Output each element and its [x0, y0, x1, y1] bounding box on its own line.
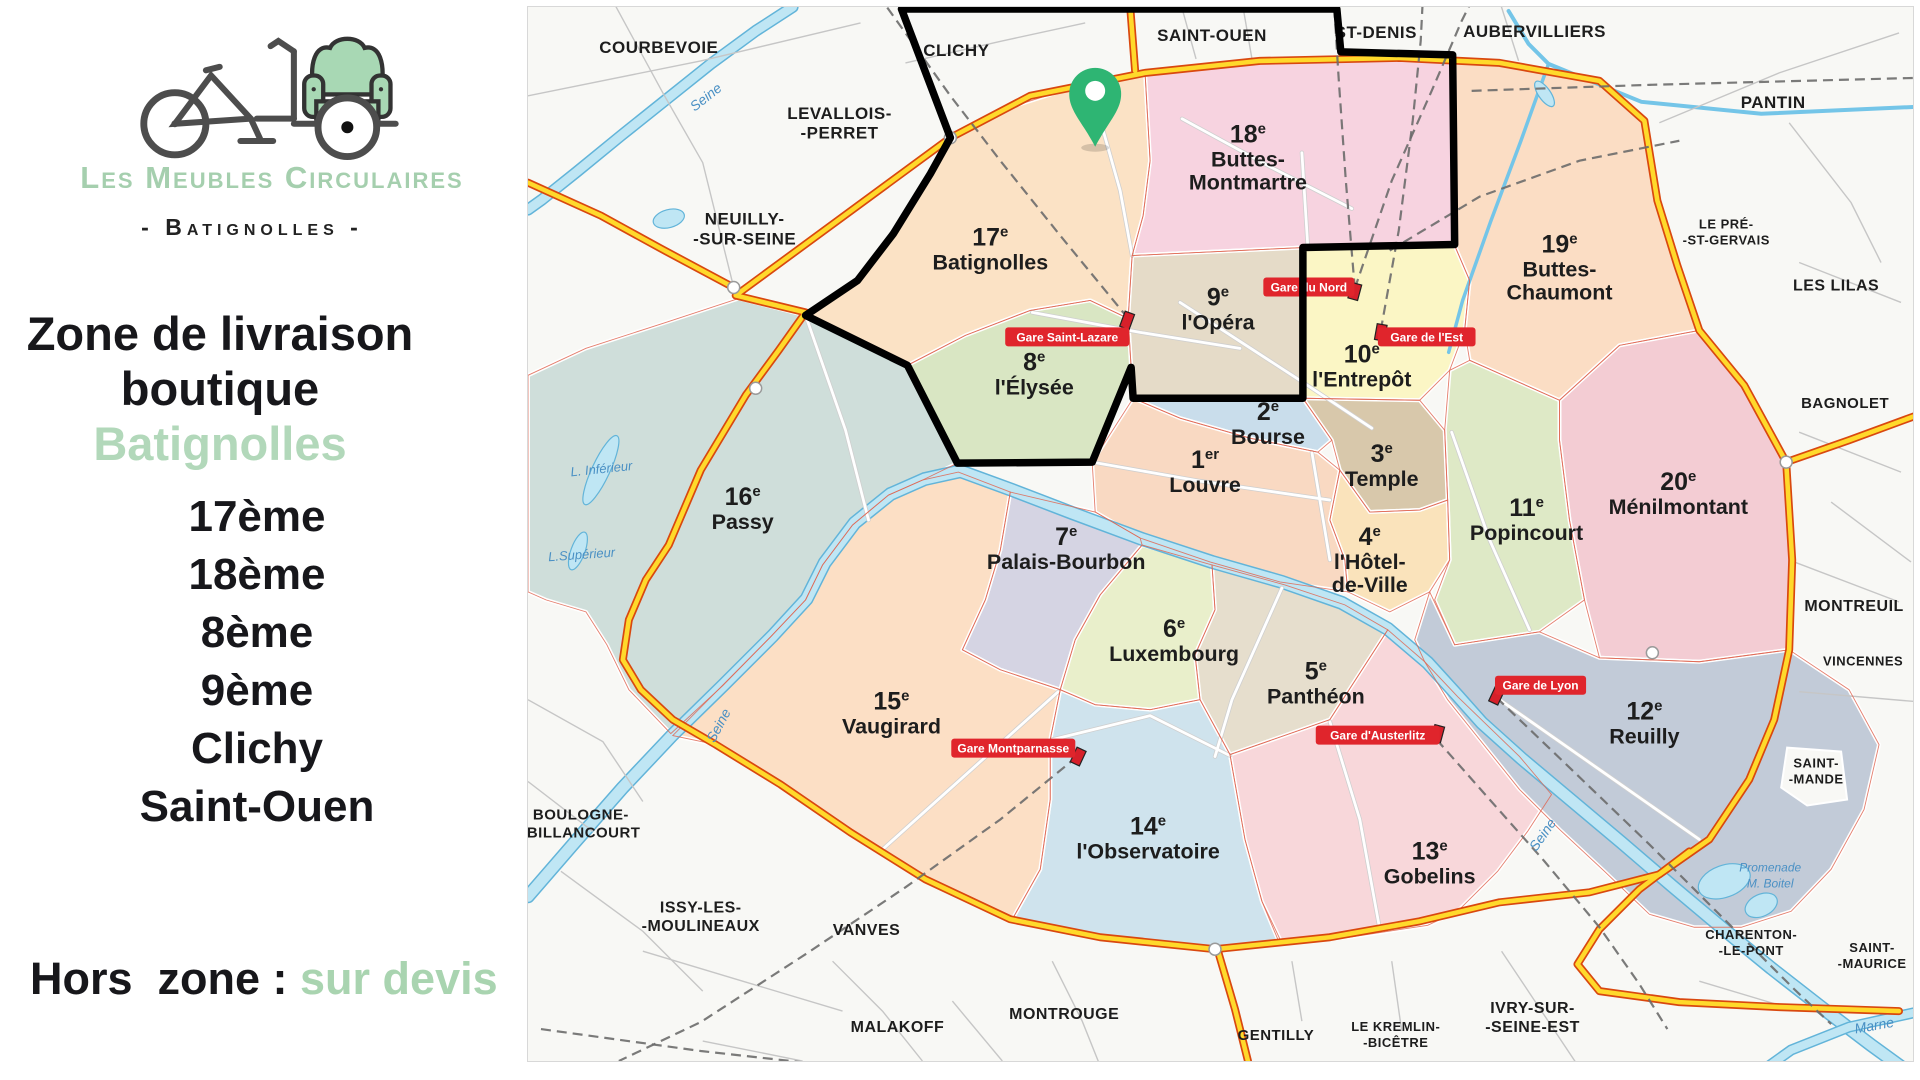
- suburb-label-21-0: BOULOGNE-: [533, 806, 629, 823]
- suburb-label-12-0: VINCENNES: [1823, 654, 1903, 669]
- suburb-label-22-0: GENTILLY: [1238, 1027, 1315, 1044]
- region-name-9e-0: l'Opéra: [1181, 310, 1255, 334]
- suburb-label-23-0: LE KREMLIN-: [1351, 1019, 1440, 1034]
- paris-delivery-map: SeineSeineSeineMarneL. InférieurL.Supéri…: [527, 6, 1914, 1062]
- region-name-20e-0: Ménilmontant: [1609, 495, 1748, 519]
- suburb-label-13-1: -MANDE: [1789, 772, 1844, 787]
- out-of-zone-label: Hors zone :: [30, 953, 300, 1004]
- station-label-3: Gare Montparnasse: [957, 742, 1069, 756]
- suburb-label-1-0: CLICHY: [923, 41, 989, 60]
- title-line2-green: Batignolles: [93, 417, 346, 470]
- suburb-label-17-0: MALAKOFF: [851, 1019, 945, 1036]
- suburb-label-9-1: -SUR-SEINE: [693, 230, 796, 249]
- suburb-label-13-0: SAINT-: [1793, 756, 1839, 771]
- suburb-label-3-0: ST-DENIS: [1335, 23, 1417, 42]
- suburb-label-5-0: PANTIN: [1741, 93, 1806, 112]
- suburb-label-4-0: AUBERVILLIERS: [1463, 22, 1606, 41]
- region-name-19e-0: Buttes-: [1523, 257, 1597, 281]
- suburb-label-11-0: MONTREUIL: [1804, 598, 1903, 615]
- suburb-label-20-0: ISSY-LES-: [660, 899, 742, 916]
- suburb-label-23-1: -BICÊTRE: [1363, 1035, 1428, 1050]
- suburb-label-19-0: VANVES: [833, 922, 900, 939]
- suburb-label-8-1: -PERRET: [801, 124, 879, 143]
- region-name-14e-0: l'Observatoire: [1076, 839, 1220, 863]
- suburb-label-16-1: -SEINE-EST: [1485, 1019, 1580, 1036]
- pin-hole: [1085, 81, 1105, 101]
- suburb-label-20-1: -MOULINEAUX: [642, 918, 760, 935]
- region-name-11e-0: Popincourt: [1470, 521, 1583, 545]
- region-name-4e-1: de-Ville: [1332, 573, 1408, 597]
- suburb-label-2-0: SAINT-OUEN: [1157, 26, 1267, 45]
- zone-item: 18ème: [0, 546, 514, 604]
- water-label-7: M. Boitel: [1747, 876, 1794, 890]
- station-label-0: Gare Saint-Lazare: [1016, 330, 1118, 344]
- bike-hub-right: [341, 121, 353, 133]
- suburb-label-7-0: LES LILAS: [1793, 277, 1879, 294]
- region-name-17e-0: Batignolles: [933, 251, 1049, 275]
- suburb-label-0-0: COURBEVOIE: [599, 38, 718, 57]
- water-label-6: Promenade: [1739, 860, 1801, 874]
- brand-branch: - Batignolles -: [0, 214, 504, 241]
- region-name-8e-0: l'Élysée: [995, 374, 1074, 399]
- region-name-2e-0: Bourse: [1231, 425, 1305, 449]
- region-name-10e-0: l'Entrepôt: [1312, 367, 1411, 391]
- zone-item: 17ème: [0, 488, 514, 546]
- suburb-label-21-1: -BILLANCOURT: [528, 824, 640, 841]
- suburb-label-10-0: BAGNOLET: [1801, 395, 1889, 412]
- suburb-label-9-0: NEUILLY-: [705, 210, 785, 229]
- station-label-5: Gare de Lyon: [1503, 679, 1579, 693]
- station-label-2: Gare de l'Est: [1390, 330, 1463, 344]
- suburb-label-14-1: -LE-PONT: [1719, 943, 1784, 958]
- map-svg: SeineSeineSeineMarneL. InférieurL.Supéri…: [528, 7, 1913, 1061]
- ring-interchange-3: [1780, 456, 1792, 468]
- region-name-3e-0: Temple: [1345, 467, 1419, 491]
- ring-interchange-0: [750, 382, 762, 394]
- station-label-1: Gare du Nord: [1271, 280, 1348, 294]
- zone-item: Clichy: [0, 720, 514, 778]
- page-title: Zone de livraison boutique Batignolles: [0, 306, 440, 471]
- bike-frame: [175, 41, 294, 141]
- region-name-13e-0: Gobelins: [1384, 864, 1476, 888]
- ring-interchange-5: [728, 281, 740, 293]
- region-name-6e-0: Luxembourg: [1109, 642, 1239, 666]
- suburb-label-8-0: LEVALLOIS-: [787, 104, 892, 123]
- brand-name: Les Meubles Circulaires: [0, 160, 544, 196]
- ring-interchange-4: [1646, 647, 1658, 659]
- suburb-label-15-1: -MAURICE: [1838, 956, 1907, 971]
- out-of-zone-value: sur devis: [300, 953, 498, 1004]
- region-name-19e-1: Chaumont: [1506, 280, 1612, 304]
- suburb-label-15-0: SAINT-: [1849, 940, 1895, 955]
- title-line2-black: boutique: [121, 362, 319, 415]
- region-name-12e-0: Reuilly: [1609, 725, 1679, 749]
- suburb-label-16-0: IVRY-SUR-: [1490, 1000, 1575, 1017]
- out-of-zone-note: Hors zone : sur devis: [30, 953, 498, 1005]
- region-name-18e-0: Buttes-: [1211, 148, 1285, 172]
- zone-list: 17ème 18ème 8ème 9ème Clichy Saint-Ouen: [0, 488, 514, 836]
- cargo-bike-logo: [128, 22, 408, 160]
- zone-item: 8ème: [0, 604, 514, 662]
- region-name-5e-0: Panthéon: [1267, 685, 1365, 709]
- region-name-16e-0: Passy: [712, 510, 774, 534]
- suburb-label-6-1: -ST-GERVAIS: [1683, 233, 1770, 248]
- suburb-label-6-0: LE PRÉ-: [1699, 217, 1754, 232]
- region-18e: [1132, 58, 1455, 256]
- station-label-4: Gare d'Austerlitz: [1330, 729, 1425, 743]
- region-name-4e-0: l'Hôtel-: [1334, 550, 1406, 574]
- ring-interchange-2: [1209, 943, 1221, 955]
- left-panel: Les Meubles Circulaires - Batignolles - …: [0, 0, 527, 1080]
- zone-item: Saint-Ouen: [0, 778, 514, 836]
- suburb-label-18-0: MONTROUGE: [1009, 1006, 1119, 1023]
- region-name-1er-0: Louvre: [1169, 473, 1241, 497]
- zone-item: 9ème: [0, 662, 514, 720]
- region-name-15e-0: Vaugirard: [842, 715, 941, 739]
- suburb-label-14-0: CHARENTON-: [1705, 927, 1797, 942]
- region-name-7e-0: Palais-Bourbon: [987, 550, 1146, 574]
- region-name-18e-1: Montmartre: [1189, 171, 1307, 195]
- title-line1: Zone de livraison: [27, 307, 414, 360]
